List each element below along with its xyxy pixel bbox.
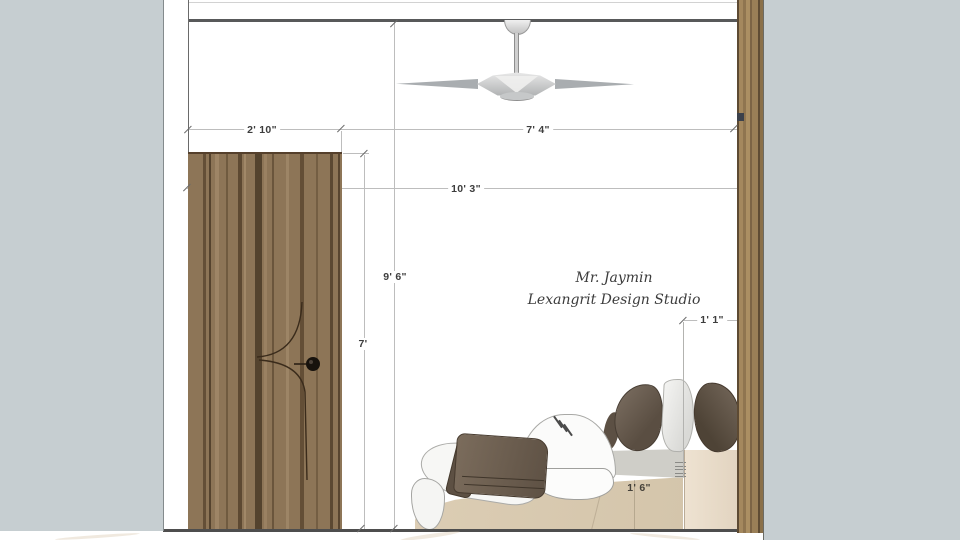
dimension-extension-line [341,131,342,152]
floor-marble-streak [400,530,460,540]
pillow-white [660,378,696,453]
platform-tick-marks [675,462,686,480]
fan-blade-left [396,79,478,89]
door-carving [188,154,342,530]
throw-blanket [453,433,549,499]
dimension-label-room-width[interactable]: 10' 3" [448,183,484,195]
right-outside-panel [763,0,960,540]
floor-strip [0,532,763,540]
floor-marble-streak [55,532,140,540]
elevation-canvas: 2' 10" 7' 4" 10' 3" 9' 6" 7' 1' 1" 1' 6"… [0,0,960,540]
fan-blade-right [555,79,634,89]
dimension-label-door-height[interactable]: 7' [356,338,371,350]
door-knob [306,357,320,371]
fan-downrod [514,33,519,74]
ceiling-line [188,19,737,22]
left-outside-panel [0,0,164,531]
headboard-side-panel [684,450,738,533]
signature-studio-name: Lexangrit Design Studio [528,292,701,308]
dimension-label-wall-height[interactable]: 9' 6" [380,271,410,283]
dimension-label-headboard-depth[interactable]: 1' 1" [697,314,727,326]
dimension-label-ceiling-span[interactable]: 7' 4" [523,124,553,136]
dimension-extension-line [683,322,684,477]
wooden-door[interactable] [188,152,342,530]
fan-bottom-cap [500,92,534,101]
dimension-label-bed-height[interactable]: 1' 6" [624,482,654,494]
signature-client-name: Mr. Jaymin [575,270,652,286]
ceiling-soffit-line [188,2,737,3]
wall-bracket [737,113,744,121]
floor-marble-streak [630,532,700,540]
wood-wall-pillar[interactable] [737,0,763,533]
dimension-label-door-width[interactable]: 2' 10" [244,124,280,136]
